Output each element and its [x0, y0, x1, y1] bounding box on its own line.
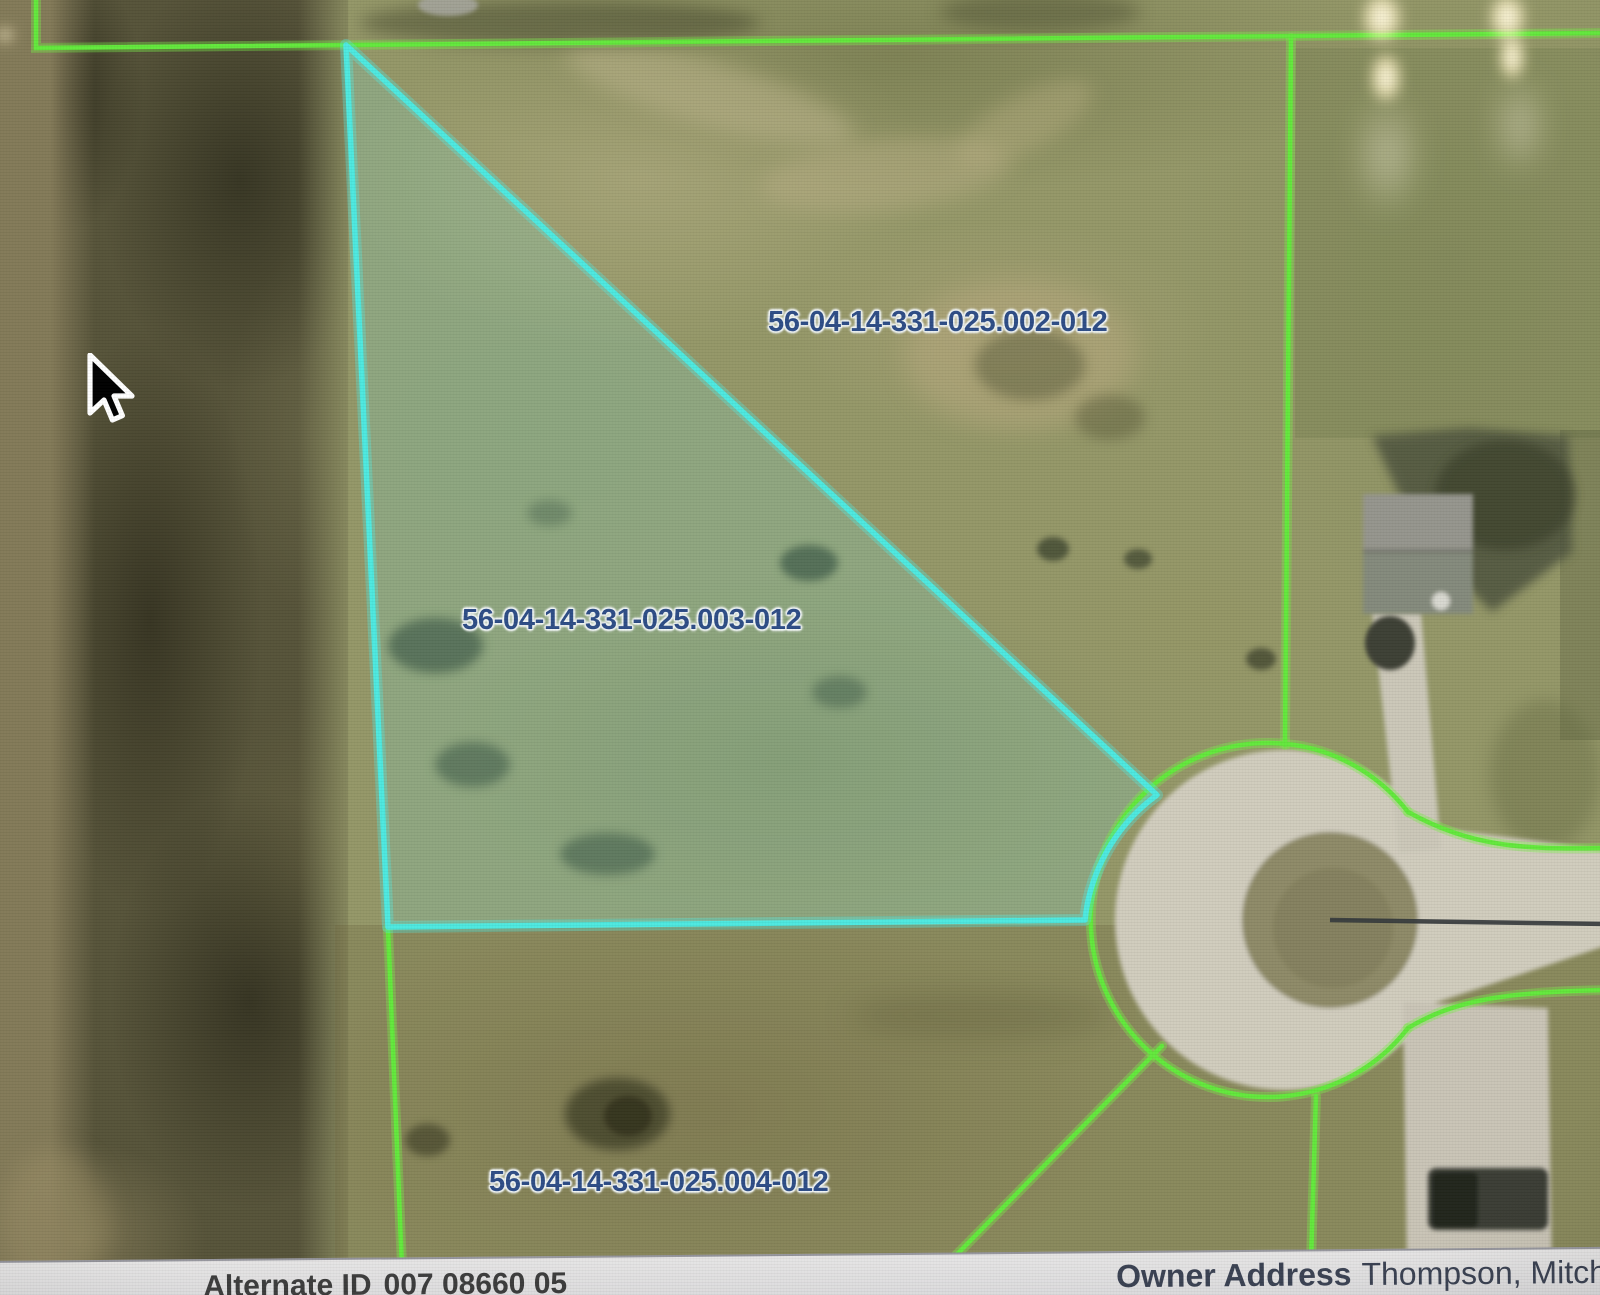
- parked-vehicle-lower: [1428, 1168, 1548, 1230]
- parcel-label-004: 56-04-14-331-025.004-012: [489, 1166, 828, 1199]
- alternate-id-field: Alternate ID007 08660 05: [203, 1267, 567, 1295]
- owner-address-field: Owner AddressThompson, Mitchell: [1116, 1254, 1600, 1295]
- lower-driveway: [1403, 1002, 1552, 1272]
- house-roof: [1363, 494, 1473, 614]
- parcel-label-002: 56-04-14-331-025.002-012: [768, 306, 1107, 339]
- mouse-cursor: [86, 353, 146, 437]
- alternate-id-value: 007 08660 05: [383, 1267, 567, 1295]
- selected-parcel-highlight[interactable]: [346, 45, 1157, 927]
- owner-address-label: Owner Address: [1116, 1256, 1352, 1294]
- map-viewport[interactable]: 56-04-14-331-025.002-012 56-04-14-331-02…: [0, 0, 1600, 1295]
- parked-car: [1365, 616, 1415, 670]
- owner-address-value: Thompson, Mitchell: [1361, 1254, 1600, 1292]
- parcel-label-003-selected: 56-04-14-331-025.003-012: [462, 604, 801, 637]
- alternate-id-label: Alternate ID: [203, 1269, 372, 1295]
